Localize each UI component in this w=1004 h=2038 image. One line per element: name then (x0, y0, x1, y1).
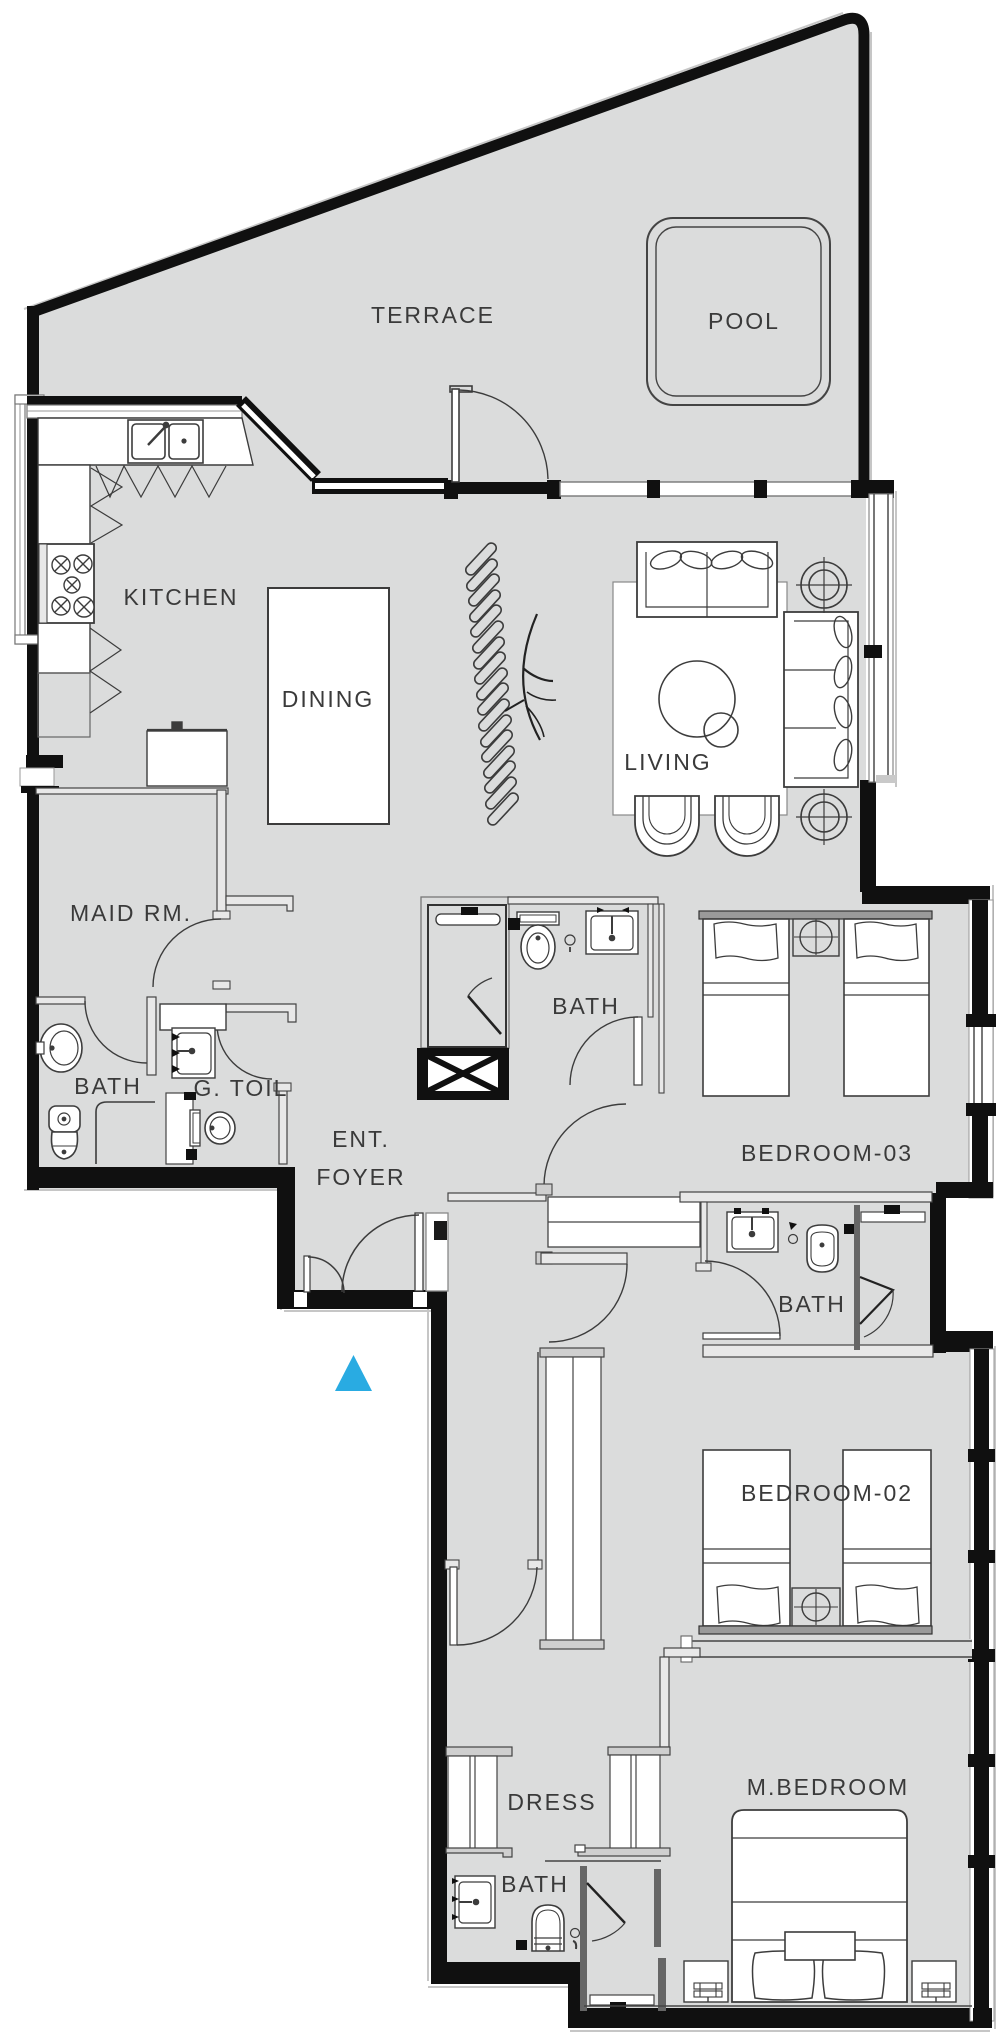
svg-text:BEDROOM-02: BEDROOM-02 (741, 1480, 913, 1506)
svg-text:BEDROOM-03: BEDROOM-03 (741, 1140, 913, 1166)
svg-text:BATH: BATH (552, 993, 620, 1019)
svg-text:ENT.: ENT. (332, 1126, 390, 1152)
svg-text:DRESS: DRESS (507, 1789, 596, 1815)
svg-text:TERRACE: TERRACE (371, 302, 495, 328)
svg-text:FOYER: FOYER (316, 1164, 405, 1190)
svg-text:LIVING: LIVING (624, 749, 711, 775)
svg-text:G. TOIL: G. TOIL (194, 1075, 289, 1101)
svg-text:BATH: BATH (74, 1073, 142, 1099)
svg-text:POOL: POOL (708, 308, 780, 334)
svg-text:MAID RM.: MAID RM. (70, 900, 192, 926)
svg-text:DINING: DINING (282, 686, 375, 712)
svg-text:BATH: BATH (501, 1871, 569, 1897)
svg-text:BATH: BATH (778, 1291, 846, 1317)
svg-text:M.BEDROOM: M.BEDROOM (747, 1774, 909, 1800)
svg-text:KITCHEN: KITCHEN (124, 584, 239, 610)
